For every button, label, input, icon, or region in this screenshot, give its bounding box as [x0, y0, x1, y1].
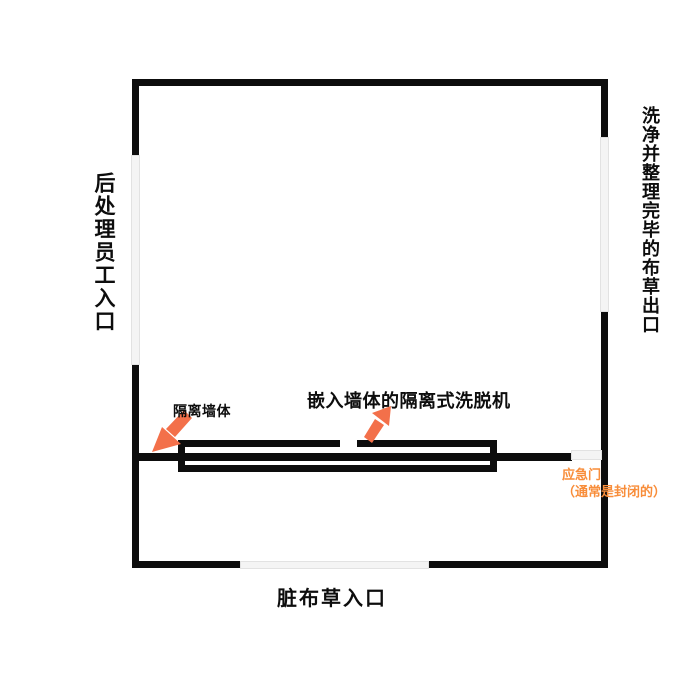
- washer-top-gap: [340, 439, 357, 448]
- emergency-door-label: 应急门 （通常是封闭的）: [562, 466, 666, 500]
- left-wall-lower: [132, 365, 139, 568]
- clean-linen-exit-opening: [600, 137, 609, 312]
- dirty-linen-entrance-opening: [240, 561, 429, 569]
- dirty-linen-entrance-label: 脏布草入口: [277, 582, 387, 611]
- top-wall: [132, 79, 608, 86]
- right-wall-lower: [601, 312, 608, 568]
- bottom-wall-right: [429, 561, 608, 568]
- bottom-wall-left: [132, 561, 240, 568]
- embedded-washer-label: 嵌入墙体的隔离式洗脱机: [307, 387, 511, 413]
- emergency-door-label-line1: 应急门: [562, 466, 666, 483]
- clean-linen-exit-label: 洗净并整理完毕的布草出口: [637, 106, 663, 334]
- right-wall-upper: [601, 79, 608, 137]
- left-wall-upper: [132, 79, 139, 155]
- laundry-room-floorplan: 后处理员工入口 洗净并整理完毕的布草出口 脏布草入口 嵌入墙体的隔离式洗脱机 隔…: [0, 0, 700, 700]
- staff-entrance-label: 后处理员工入口: [88, 172, 118, 333]
- emergency-door: [571, 450, 602, 460]
- staff-entrance-opening: [131, 155, 140, 365]
- isolation-wall-label: 隔离墙体: [173, 401, 231, 421]
- emergency-door-label-line2: （通常是封闭的）: [562, 483, 666, 500]
- embedded-washer-extractor: [178, 440, 497, 472]
